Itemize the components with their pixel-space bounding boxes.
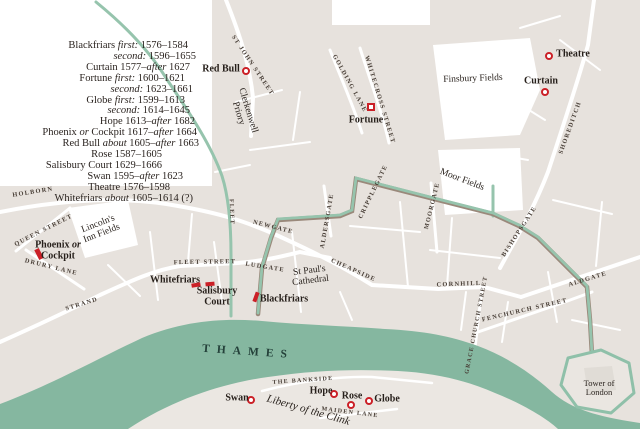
theatre-marker-fortune [367, 103, 375, 111]
theatre-label-rose: Rose [342, 392, 363, 403]
theatre-label-curtain: Curtain [524, 77, 558, 88]
theatre-marker-red-bull [242, 67, 250, 75]
theatre-marker-curtain [541, 88, 549, 96]
theatre-label-fortune: Fortune [349, 116, 383, 127]
street-label-fleet: FLEET [227, 199, 234, 225]
london-theatres-map: Blackfriars first: 1576–1584second: 1596… [0, 0, 640, 429]
street-label-fleet-street: FLEET STREET [174, 259, 237, 267]
theatre-label-red-bull: Red Bull [202, 65, 240, 76]
theatre-marker-theatre [545, 52, 553, 60]
theatre-label-globe: Globe [374, 395, 400, 406]
theatre-label-swan: Swan [225, 394, 248, 405]
theatre-label-theatre: Theatre [556, 50, 590, 61]
theatre-marker-globe [365, 397, 373, 405]
theatre-label-blackfriars: Blackfriars [260, 295, 308, 306]
theatre-label-phoenix-or-cockpit: Phoenix orCockpit [35, 240, 81, 261]
place-label-tower-of-london: Tower ofLondon [584, 379, 615, 397]
theatre-label-whitefriars: Whitefriars [150, 276, 200, 287]
theatre-dates-legend: Blackfriars first: 1576–1584second: 1596… [0, 41, 200, 205]
place-label-finsbury-fields: Finsbury Fields [443, 73, 503, 85]
theatre-label-hope: Hope [310, 387, 333, 398]
theatre-label-salisbury-court: SalisburyCourt [197, 286, 238, 307]
